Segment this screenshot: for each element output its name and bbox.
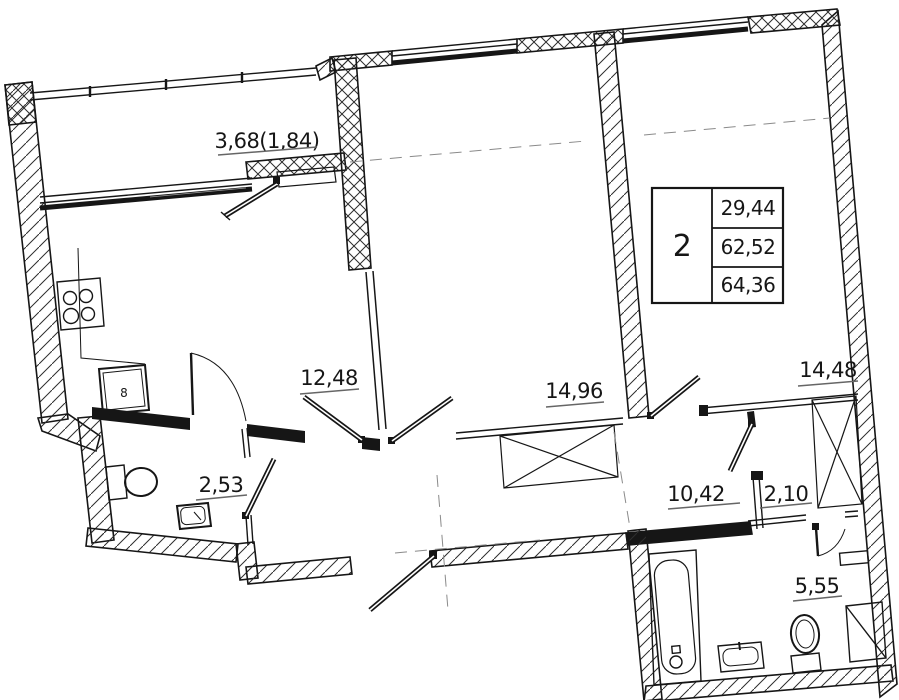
room-area-label-balcony: 3,68(1,84) (215, 129, 320, 153)
wc-sink (177, 503, 211, 529)
burner (64, 309, 79, 324)
bathtub-tap (672, 646, 681, 654)
partition-bedroom-south (456, 418, 623, 439)
info-table-rooms-count: 2 (673, 229, 692, 264)
wall-bedroom-living (594, 32, 649, 418)
bathroom-toilet (789, 614, 821, 673)
storage-wardrobe (812, 396, 862, 508)
room-area-label-hallway: 10,42 (667, 482, 725, 506)
wall-cap (699, 405, 708, 416)
info-table-total-area: 64,36 (721, 273, 776, 297)
water-heater (840, 551, 869, 565)
balcony-window-rail (30, 68, 316, 100)
living-room-door (647, 377, 699, 419)
info-table-apartment-area: 62,52 (721, 235, 776, 259)
wall-wc-bottom (86, 528, 238, 562)
room-area-label-storage: 2,10 (764, 482, 809, 506)
burner (64, 292, 77, 305)
wall-bathroom-left (628, 529, 662, 700)
living-room-window (623, 17, 748, 41)
room-area-label-bedroom: 14,96 (545, 379, 603, 403)
info-table: 2 29,44 62,52 64,36 (652, 188, 783, 303)
floor-plan-drawing: 3,68(1,84) 12,48 14,96 14,48 2,53 10,42 … (0, 0, 899, 700)
kitchen-corridor-door (191, 353, 246, 421)
partition-kitchen-bedroom (366, 271, 386, 430)
wall-balcony-pier (246, 153, 346, 179)
windows (30, 17, 748, 208)
bathroom-door (812, 523, 845, 556)
room-area-label-living-room: 14,48 (799, 358, 857, 382)
wall-balcony-connector (316, 58, 336, 80)
wall-left (5, 82, 68, 423)
bedroom-window (392, 39, 517, 63)
kitchen-counter (78, 248, 145, 364)
kitchen-hallway-door (304, 397, 365, 443)
bathtub-drain (670, 656, 682, 668)
wall-south-east (430, 533, 628, 567)
partition-bathroom-north (748, 511, 858, 526)
wc-toilet (106, 465, 158, 500)
bathroom-sink (718, 642, 764, 672)
wc-door (242, 459, 274, 519)
wall-south-west (246, 557, 352, 584)
partition-living-south (701, 394, 858, 414)
room-area-label-bathroom: 5,55 (795, 574, 840, 598)
wall-cap (751, 471, 763, 480)
fixtures (57, 248, 886, 685)
burner (82, 308, 95, 321)
wall-kitchen-south (92, 407, 380, 451)
info-table-living-area: 29,44 (721, 196, 776, 220)
exterior-walls (5, 9, 897, 700)
wall-left-top-pier (5, 82, 36, 125)
burner (80, 290, 93, 303)
room-area-label-kitchen: 12,48 (300, 366, 358, 390)
room-area-label-wc: 2,53 (199, 473, 244, 497)
floor-plan-page: 3,68(1,84) 12,48 14,96 14,48 2,53 10,42 … (0, 0, 899, 700)
partition-wc-right (242, 428, 253, 545)
kitchen-unit-label: 8 (120, 386, 128, 400)
hallway-wardrobe (500, 425, 618, 488)
entrance-door (370, 551, 437, 610)
bedroom-door (388, 398, 452, 444)
storage-door (730, 420, 755, 471)
partition-storage (753, 476, 763, 529)
wall-wc-left (78, 416, 114, 543)
